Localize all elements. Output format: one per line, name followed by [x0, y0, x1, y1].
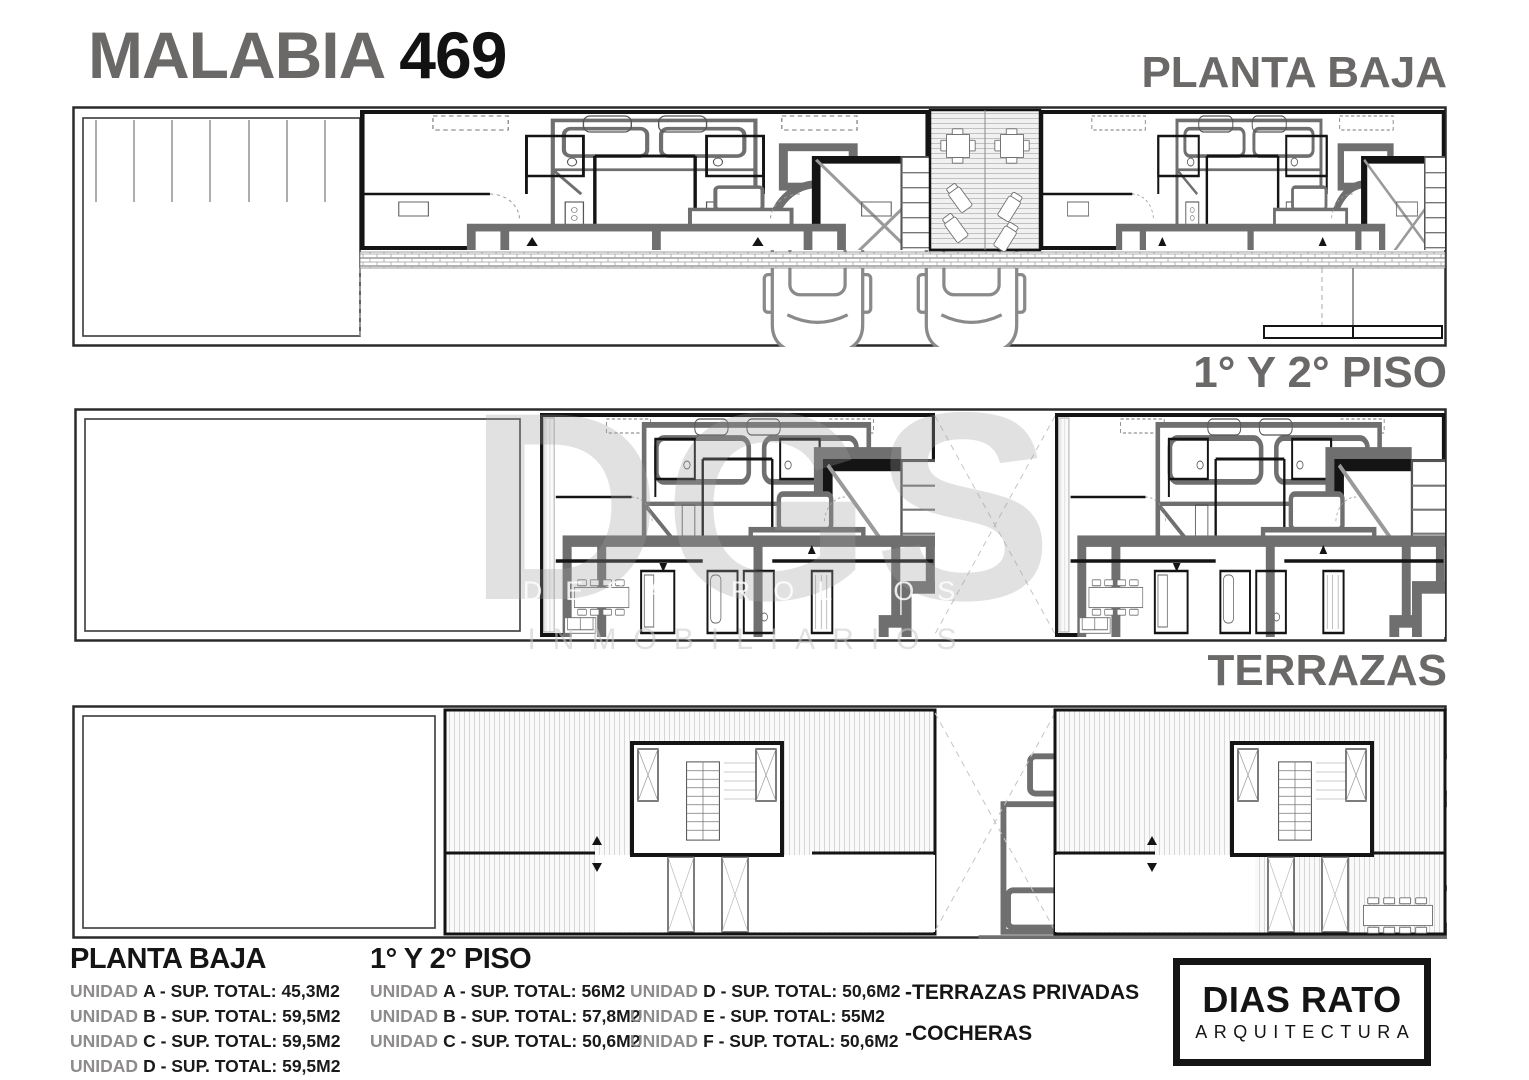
- piso-floor-plan: [74, 408, 1447, 642]
- title-number: 469: [399, 18, 506, 92]
- legend-row: UNIDADD - SUP. TOTAL: 59,5M2: [70, 1054, 340, 1079]
- section-label-terrazas: TERRAZAS: [1207, 646, 1447, 696]
- note-terrazas-privadas: -TERRAZAS PRIVADAS: [905, 972, 1139, 1013]
- legend-row: UNIDADA - SUP. TOTAL: 45,3M2: [70, 979, 340, 1004]
- legend-piso: 1° Y 2° PISO UNIDADA - SUP. TOTAL: 56M2 …: [370, 944, 640, 1054]
- central-patio: [930, 110, 1040, 252]
- page-title: MALABIA469: [88, 16, 506, 94]
- legend-heading-planta-baja: PLANTA BAJA: [70, 944, 340, 975]
- logo-name: DIAS RATO: [1202, 981, 1401, 1019]
- legend-notes: -TERRAZAS PRIVADAS -COCHERAS: [905, 972, 1139, 1054]
- legend-row: UNIDADD - SUP. TOTAL: 50,6M2: [630, 979, 900, 1004]
- section-label-planta-baja: PLANTA BAJA: [1141, 48, 1447, 98]
- legend-row: UNIDADB - SUP. TOTAL: 59,5M2: [70, 1004, 340, 1029]
- plan-sheet: MALABIA469 PLANTA BAJA 1° Y 2° PISO TERR…: [0, 0, 1529, 1080]
- legend-row: UNIDADB - SUP. TOTAL: 57,8M2: [370, 1004, 640, 1029]
- section-label-piso: 1° Y 2° PISO: [1193, 348, 1447, 398]
- dias-rato-logo: DIAS RATO ARQUITECTURA: [1173, 958, 1431, 1066]
- planta-baja-floor-plan: [72, 106, 1447, 347]
- legend-piso-continued: UNIDADD - SUP. TOTAL: 50,6M2 UNIDADE - S…: [630, 944, 900, 1054]
- apartment-block: [1057, 415, 1447, 642]
- terrace-block: [1055, 705, 1447, 939]
- legend-row: UNIDADC - SUP. TOTAL: 59,5M2: [70, 1029, 340, 1054]
- terrazas-floor-plan: [72, 705, 1447, 939]
- sidewalk: [360, 252, 1445, 268]
- legend-row: UNIDADE - SUP. TOTAL: 55M2: [630, 1004, 900, 1029]
- legend-row: UNIDADA - SUP. TOTAL: 56M2: [370, 979, 640, 1004]
- legend-heading-piso: 1° Y 2° PISO: [370, 944, 640, 975]
- logo-subtitle: ARQUITECTURA: [1189, 1022, 1416, 1043]
- title-street: MALABIA: [88, 18, 385, 92]
- note-cocheras: -COCHERAS: [905, 1013, 1139, 1054]
- legend-planta-baja: PLANTA BAJA UNIDADA - SUP. TOTAL: 45,3M2…: [70, 944, 340, 1079]
- legend-row: UNIDADF - SUP. TOTAL: 50,6M2: [630, 1029, 900, 1054]
- legend-row: UNIDADC - SUP. TOTAL: 50,6M2: [370, 1029, 640, 1054]
